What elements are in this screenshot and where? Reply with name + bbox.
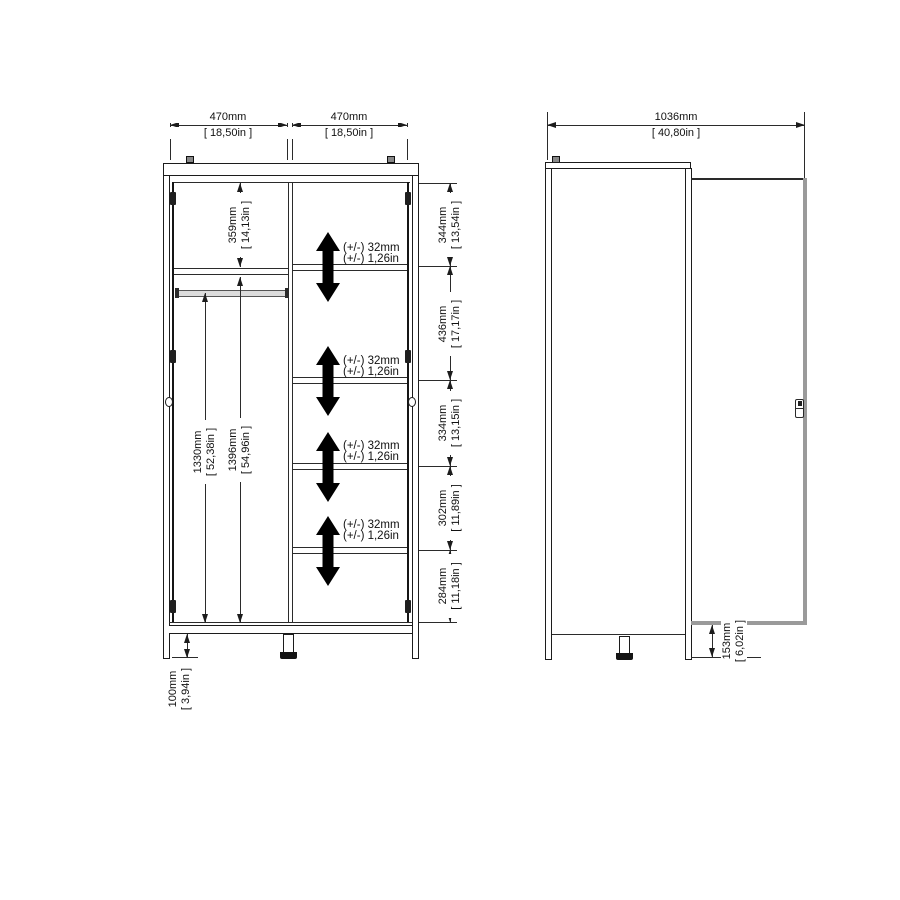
- shelf-adjust-label: (+/-) 32mm (+/-) 1,26in: [343, 356, 400, 378]
- dim-extension-line: [419, 622, 457, 623]
- dim-line-door-right: [292, 125, 407, 126]
- section-1-in: [ 13,54in ]: [450, 193, 463, 257]
- shelf-adjust-label: (+/-) 32mm (+/-) 1,26in: [343, 520, 400, 542]
- door-right-width-in: [ 18,50in ]: [289, 127, 409, 139]
- center-foot: [283, 634, 294, 653]
- shelf-adjust-arrow-icon: [315, 516, 341, 586]
- interior-mm: 1396mm: [227, 418, 240, 482]
- top-shelf-mm: 359mm: [227, 193, 240, 257]
- hinge-icon: [405, 600, 411, 613]
- door-left-width-in: [ 18,50in ]: [168, 127, 288, 139]
- shelf-adjust-label: (+/-) 32mm (+/-) 1,26in: [343, 243, 400, 265]
- hinge-icon: [170, 600, 176, 613]
- side-back-panel: [545, 168, 552, 660]
- section-1-mm: 344mm: [437, 193, 450, 257]
- door-handle-icon: [408, 397, 416, 407]
- front-right-side-panel: [412, 175, 419, 659]
- hang-space-in: [ 52,38in ]: [205, 420, 218, 484]
- dim-arrow-icon: [237, 277, 243, 286]
- section-2-in: [ 17,17in ]: [450, 292, 463, 356]
- legs-in: [ 3,94in ]: [180, 661, 193, 717]
- dim-extension-line: [547, 112, 548, 160]
- foot-pad-icon: [616, 653, 633, 660]
- side-top-panel: [545, 162, 691, 169]
- handle-divider-line: [796, 408, 803, 409]
- legs-mm: 100mm: [167, 661, 180, 717]
- dim-arrow-icon: [547, 122, 556, 128]
- rod-bracket-icon: [175, 288, 179, 298]
- shelf-adjust-arrow-icon: [315, 346, 341, 416]
- center-divider-line: [292, 182, 293, 623]
- shelf-adjust-label: (+/-) 32mm (+/-) 1,26in: [343, 441, 400, 463]
- top-hinge-icon: [387, 156, 395, 163]
- section-1-label: 344mm [ 13,54in ]: [437, 193, 463, 257]
- door-clearance-label: 153mm [ 6,02in ]: [721, 613, 747, 669]
- shelf-line: [293, 553, 407, 554]
- shelf-line: [293, 469, 407, 470]
- left-shelf-line: [174, 274, 288, 275]
- shelf-adjust-arrow-icon: [315, 232, 341, 302]
- side-bottom-line: [552, 634, 685, 635]
- shelf-adjust-in: (+/-) 1,26in: [343, 367, 400, 378]
- open-door-top-edge: [691, 178, 805, 180]
- dim-arrow-icon: [447, 466, 453, 475]
- left-shelf-line: [174, 268, 288, 269]
- depth-open-mm: 1036mm: [616, 111, 736, 123]
- door-handle-icon: [165, 397, 173, 407]
- shelf-adjust-arrow-icon: [315, 432, 341, 502]
- dim-arrow-icon: [237, 258, 243, 267]
- dim-arrow-icon: [709, 625, 715, 634]
- door-lock-icon: [798, 401, 802, 406]
- shelf-adjust-in: (+/-) 1,26in: [343, 452, 400, 463]
- section-4-mm: 302mm: [437, 476, 450, 540]
- interior-in: [ 54,96in ]: [240, 418, 253, 482]
- hang-space-label: 1330mm [ 52,38in ]: [192, 420, 218, 484]
- bottom-panel: [169, 625, 412, 634]
- top-shelf-height-label: 359mm [ 14,13in ]: [227, 193, 253, 257]
- section-5-label: 284mm [ 11,18in ]: [437, 554, 463, 618]
- section-2-mm: 436mm: [437, 292, 450, 356]
- section-3-in: [ 13,15in ]: [450, 391, 463, 455]
- shelf-line: [293, 463, 407, 464]
- foot-pad-icon: [280, 652, 297, 659]
- hinge-icon: [170, 350, 176, 363]
- dim-arrow-icon: [447, 183, 453, 192]
- section-3-label: 334mm [ 13,15in ]: [437, 391, 463, 455]
- hinge-icon: [170, 192, 176, 205]
- side-front-panel: [685, 168, 692, 660]
- hinge-icon: [405, 350, 411, 363]
- shelf-line: [293, 270, 407, 271]
- dim-arrow-icon: [202, 614, 208, 623]
- dim-arrow-icon: [237, 614, 243, 623]
- dim-arrow-icon: [709, 648, 715, 657]
- section-5-mm: 284mm: [437, 554, 450, 618]
- dim-arrow-icon: [447, 541, 453, 550]
- shelf-adjust-in: (+/-) 1,26in: [343, 254, 400, 265]
- depth-open-in: [ 40,80in ]: [616, 127, 736, 139]
- dim-arrow-icon: [237, 183, 243, 192]
- wardrobe-dimension-drawing: 470mm [ 18,50in ] 470mm [ 18,50in ]: [0, 0, 900, 900]
- front-left-side-panel: [163, 175, 170, 659]
- section-5-in: [ 11,18in ]: [450, 554, 463, 618]
- section-2-label: 436mm [ 17,17in ]: [437, 292, 463, 356]
- dim-arrow-icon: [447, 457, 453, 466]
- dim-arrow-icon: [202, 293, 208, 302]
- section-3-mm: 334mm: [437, 391, 450, 455]
- interior-top-line: [172, 182, 410, 183]
- dim-line-depth: [547, 125, 805, 126]
- section-4-in: [ 11,89in ]: [450, 476, 463, 540]
- dim-arrow-icon: [447, 266, 453, 275]
- dim-arrow-icon: [447, 380, 453, 389]
- side-foot: [619, 636, 630, 654]
- top-hinge-icon: [186, 156, 194, 163]
- top-shelf-in: [ 14,13in ]: [240, 193, 253, 257]
- interior-height-label: 1396mm [ 54,96in ]: [227, 418, 253, 482]
- shelf-line: [293, 383, 407, 384]
- door-right-width-mm: 470mm: [289, 111, 409, 123]
- dim-line-door-left: [170, 125, 287, 126]
- shelf-line: [293, 547, 407, 548]
- dim-arrow-icon: [184, 634, 190, 643]
- hinge-icon: [405, 192, 411, 205]
- door-clearance-mm: 153mm: [721, 613, 734, 669]
- door-clearance-in: [ 6,02in ]: [734, 613, 747, 669]
- front-top-panel: [163, 163, 419, 176]
- door-left-width-mm: 470mm: [168, 111, 288, 123]
- shelf-adjust-in: (+/-) 1,26in: [343, 531, 400, 542]
- dim-arrow-icon: [796, 122, 805, 128]
- section-4-label: 302mm [ 11,89in ]: [437, 476, 463, 540]
- center-divider-line: [288, 182, 289, 623]
- dim-arrow-icon: [184, 649, 190, 658]
- dim-arrow-icon: [447, 257, 453, 266]
- hang-space-mm: 1330mm: [192, 420, 205, 484]
- rod-bracket-icon: [285, 288, 289, 298]
- legs-height-label: 100mm [ 3,94in ]: [167, 661, 193, 717]
- hanging-rod: [176, 290, 288, 297]
- dim-arrow-icon: [447, 371, 453, 380]
